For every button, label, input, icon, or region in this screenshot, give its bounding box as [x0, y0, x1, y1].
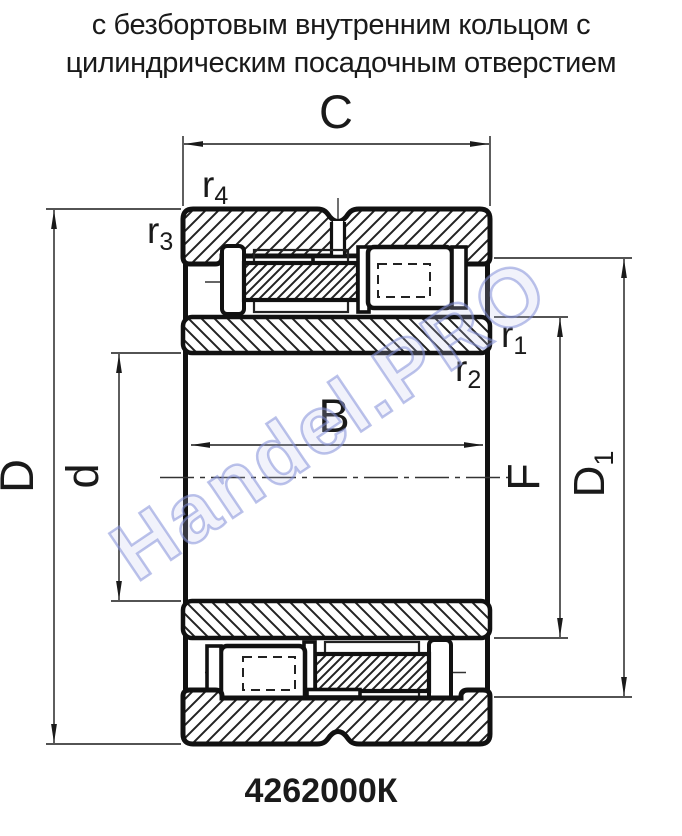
cage-bar-top-right — [452, 247, 466, 308]
label-r3-sub: 3 — [159, 228, 173, 256]
bearing-cross-section-drawing: C D d B — [0, 0, 682, 836]
dim-label-D1-base: D — [565, 466, 614, 498]
label-r3-base: r — [147, 210, 159, 251]
inner-ring-bottom-section — [183, 601, 490, 638]
label-r1-sub: 1 — [513, 332, 527, 360]
label-r4: r4 — [202, 164, 228, 210]
dim-label-C: C — [319, 85, 353, 138]
roller-pin-bottom-right — [315, 654, 429, 691]
dimension-B: B — [191, 389, 483, 448]
title-line-1: с безбортовым внутренним кольцом с — [0, 6, 682, 44]
label-r1-base: r — [501, 314, 513, 355]
bearing-drawing-page: с безбортовым внутренним кольцом с цилин… — [0, 0, 682, 836]
roller-pin-top-left — [244, 263, 358, 300]
dimension-C: C — [183, 85, 490, 206]
dim-label-D1-sub: 1 — [589, 451, 619, 466]
dim-label-d: d — [57, 463, 108, 488]
oil-hole-channel — [333, 221, 343, 259]
outer-ring-bottom — [183, 690, 490, 745]
title-line-2: цилиндрическим посадочным отверстием — [0, 44, 682, 82]
label-r3: r3 — [147, 210, 173, 256]
page-title: с безбортовым внутренним кольцом с цилин… — [0, 6, 682, 82]
dim-label-B: B — [318, 389, 349, 442]
dim-label-F: F — [498, 463, 549, 491]
bearing-designation: 4262000К — [0, 772, 642, 811]
cage-rail-bottom — [307, 690, 360, 698]
cage-bar-top-left — [222, 246, 244, 314]
inner-ring-top-section — [183, 317, 490, 353]
dimension-F: F — [494, 317, 568, 638]
roller-top-right — [368, 247, 452, 308]
dim-label-D1: D1 — [565, 451, 619, 498]
label-r4-sub: 4 — [214, 182, 228, 210]
label-r2-sub: 2 — [467, 366, 481, 394]
dim-label-D: D — [0, 459, 43, 493]
label-r2-base: r — [455, 348, 467, 389]
label-r4-base: r — [202, 164, 214, 205]
label-r1: r1 — [501, 314, 527, 360]
